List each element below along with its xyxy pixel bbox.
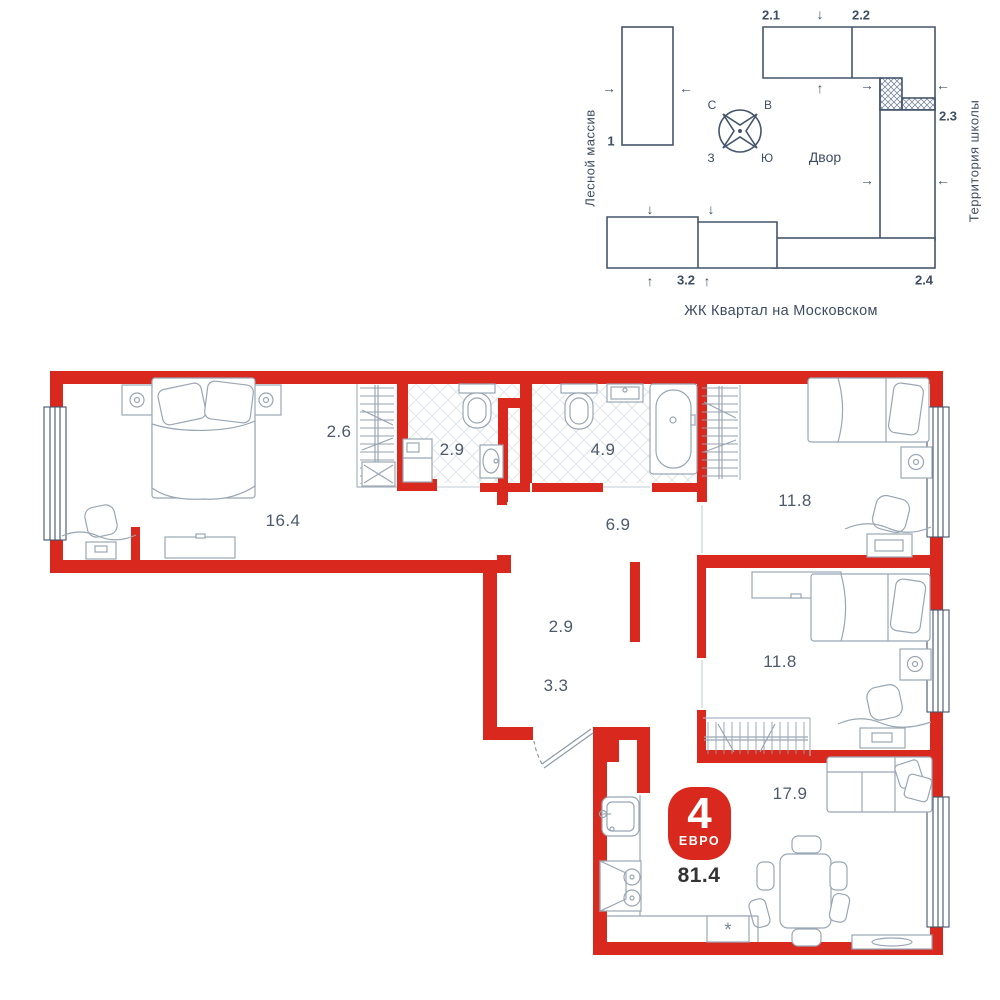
dining-table — [780, 854, 831, 928]
compass-rose — [719, 110, 761, 152]
label-building-2-3: 2.3 — [939, 109, 957, 124]
total-area: 81.4 — [678, 864, 721, 888]
wardrobe-bedroom2 — [702, 385, 740, 480]
sconce-left — [122, 385, 152, 415]
desk-bedroom3 — [838, 683, 931, 748]
entrance-arrow: ↓ — [647, 201, 654, 217]
label-building-2-4: 2.4 — [915, 273, 933, 288]
sofa — [827, 757, 933, 812]
area-bathroom: 4.9 — [591, 440, 616, 460]
site-building-3 — [607, 217, 777, 268]
appliance-asterisk: * — [724, 920, 731, 942]
bathtub — [650, 384, 697, 474]
site-subject-building-hatch2 — [902, 98, 935, 110]
right-area-label: Территория школы — [967, 100, 982, 222]
area-bedroom-master: 16.4 — [266, 511, 301, 531]
washing-machine — [403, 439, 432, 482]
entrance-arrow: ↑ — [647, 273, 654, 289]
master-desk — [62, 503, 136, 559]
area-wardrobe-master: 2.6 — [327, 422, 352, 442]
toilet-main — [561, 384, 597, 429]
tv-stand — [852, 935, 932, 949]
complex-caption: ЖК Квартал на Московском — [684, 303, 877, 319]
furniture — [62, 378, 933, 949]
room-count-badge: 4 ЕВРО — [668, 787, 731, 860]
single-bed-3 — [811, 574, 930, 641]
left-area-label: Лесной массив — [583, 109, 598, 206]
compass-south: Ю — [761, 151, 773, 165]
label-building-2-1: 2.1 — [762, 8, 780, 23]
label-building-3-2: 3.2 — [677, 273, 695, 288]
desk-bedroom2 — [845, 493, 931, 557]
wardrobe-bedroom3 — [703, 718, 810, 756]
single-bed-2 — [808, 378, 929, 442]
entrance-arrow: ↑ — [817, 80, 824, 96]
master-dresser — [165, 534, 235, 558]
window-master — [44, 407, 66, 540]
entrance-arrow: ↑ — [704, 273, 711, 289]
compass-east: В — [764, 98, 772, 112]
double-bed — [152, 378, 255, 499]
label-building-2-2: 2.2 — [852, 8, 870, 23]
entrance-arrow: ↓ — [708, 201, 715, 217]
entrance-arrow: → — [860, 77, 874, 93]
site-building-2-south — [772, 238, 935, 268]
speaker-bedroom2 — [901, 447, 932, 478]
site-subject-building-hatch — [880, 78, 902, 110]
label-building-1: 1 — [607, 134, 614, 149]
apartment-type: ЕВРО — [668, 835, 731, 848]
kitchen-sink — [600, 797, 640, 836]
courtyard-label: Двор — [809, 149, 841, 165]
speaker-bedroom3 — [900, 649, 931, 680]
site-building-2-east — [880, 110, 935, 240]
toilet-ensuite — [459, 384, 495, 428]
wardrobe-master-unit — [357, 384, 397, 487]
area-bathroom-ensuite: 2.9 — [440, 440, 465, 460]
area-corridor: 6.9 — [606, 515, 631, 535]
rooms-count: 4 — [668, 793, 731, 835]
area-kitchen-living: 17.9 — [773, 784, 808, 804]
kitchen-vent-shaft — [607, 727, 650, 793]
stove — [600, 861, 641, 911]
entrance-arrow: ← — [936, 172, 950, 188]
sink-ensuite — [480, 445, 503, 478]
wall-sink — [607, 384, 643, 402]
compass-west: З — [707, 151, 714, 165]
area-hallway: 3.3 — [544, 676, 569, 696]
entrance-arrow: → — [602, 80, 616, 96]
compass-north: С — [708, 98, 717, 112]
area-bedroom-2: 11.8 — [778, 491, 811, 511]
door-openings — [437, 487, 702, 708]
site-plan — [607, 27, 935, 268]
floorplan-page: 2.1 2.2 2.3 2.4 3.2 1 Двор С В З Ю Лесно… — [0, 0, 1000, 1000]
window-living — [927, 797, 949, 927]
entrance-arrow: ↓ — [817, 6, 824, 22]
entrance-arrow: ← — [679, 80, 693, 96]
area-bedroom-3: 11.8 — [763, 652, 796, 672]
plan-drawing — [0, 0, 1000, 1000]
entrance-arrow: ← — [936, 77, 950, 93]
area-wardrobe-hall: 2.9 — [549, 617, 574, 637]
entrance-door — [534, 729, 593, 768]
site-building-1 — [622, 27, 673, 145]
entrance-arrow: → — [860, 172, 874, 188]
